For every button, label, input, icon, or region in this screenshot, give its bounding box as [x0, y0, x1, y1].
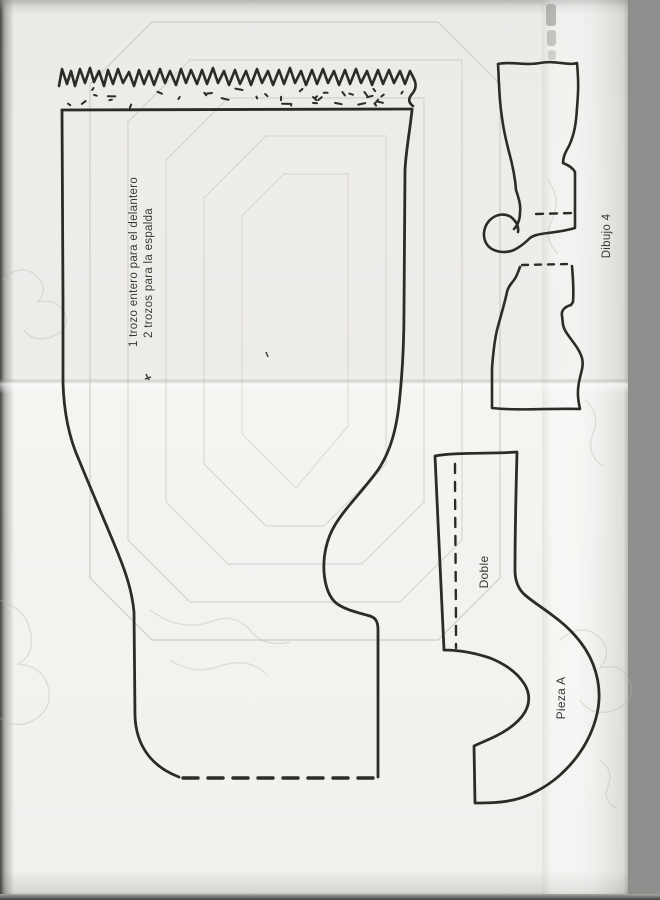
pattern-drawing: 1 trozo entero para el delantero 2 trozo… [0, 0, 660, 900]
fur-trim-right-curl [409, 79, 415, 106]
main-piece-label-line2: 2 trozos para la espalda [143, 208, 155, 338]
main-piece-right-edge [324, 110, 412, 777]
fur-texture-dash [373, 89, 375, 91]
fur-texture-dash [349, 94, 353, 95]
scan-bottom-edge [0, 894, 660, 900]
fur-texture-dash [378, 102, 383, 103]
fold-dashed-line [455, 464, 456, 648]
boot-piece-dashed-line [536, 213, 573, 214]
main-piece-label-line1: 1 trozo entero para el delantero [128, 177, 140, 347]
fur-texture-dash [300, 89, 303, 91]
fur-texture-dash [401, 92, 402, 94]
fur-texture-dash [158, 92, 162, 94]
hook-piece-outline [435, 452, 599, 803]
fur-texture-dash [315, 96, 317, 98]
fur-texture-dash [130, 105, 131, 108]
second-piece-dashed-line [522, 264, 571, 265]
bleedthrough-text-mark [546, 4, 556, 60]
piece-a-label: Pieza A [554, 677, 568, 720]
fur-texture-dash [265, 94, 267, 96]
fur-texture-dash [358, 103, 365, 105]
fur-texture-dash [92, 88, 93, 90]
fur-texture-dash [235, 89, 242, 90]
fur-texture-dash [342, 92, 345, 95]
fur-texture-dash [109, 100, 112, 101]
fur-texture-dash [82, 101, 86, 104]
fur-texture-dash [207, 93, 213, 94]
fur-texture-dash [335, 103, 342, 104]
fur-texture-dash [364, 92, 367, 96]
fur-texture-dash [178, 97, 179, 99]
fur-texture-dash [256, 97, 257, 99]
fur-texture-dash [94, 95, 97, 96]
fur-texture-dash [68, 104, 70, 106]
scanned-pattern-sheet: 1 trozo entero para el delantero 2 trozo… [0, 0, 660, 900]
main-pattern-piece-outline [62, 110, 179, 777]
fur-trim-zigzag-edge [59, 68, 414, 86]
fur-texture-dash [374, 103, 376, 105]
bleedthrough-doodles [0, 180, 631, 808]
boot-piece-outline [484, 62, 578, 252]
second-piece-outline [492, 266, 583, 409]
fur-texture-dash [381, 95, 383, 97]
drawing-number-label: Dibujo 4 [601, 213, 613, 258]
stray-marks [145, 352, 268, 380]
fold-label: Doble [477, 556, 491, 589]
fur-band-line [62, 109, 412, 110]
